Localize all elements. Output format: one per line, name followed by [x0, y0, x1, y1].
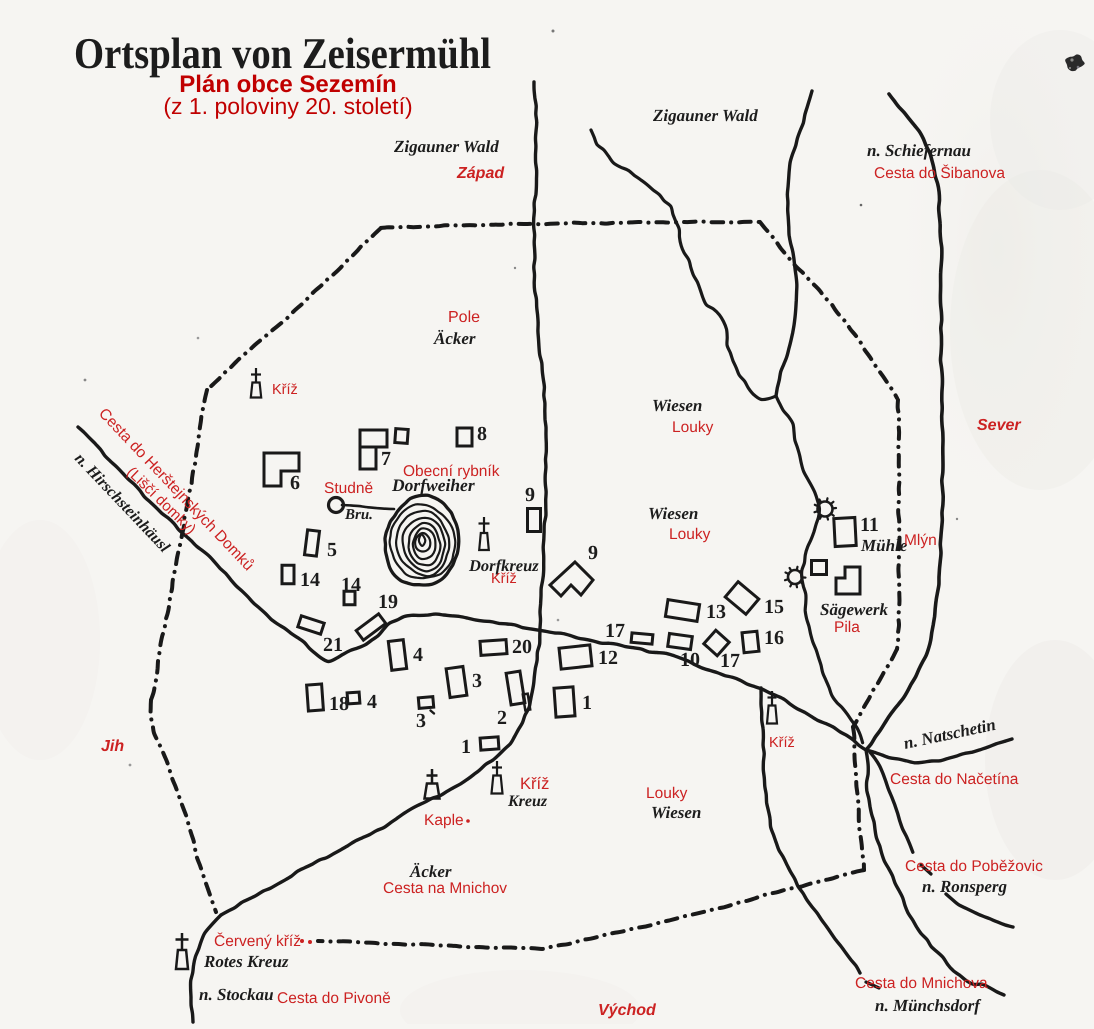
svg-text:Východ: Východ — [598, 1002, 657, 1019]
svg-text:Obecní rybník: Obecní rybník — [403, 463, 500, 480]
svg-text:Kříž: Kříž — [769, 735, 795, 751]
svg-text:Studně: Studně — [324, 480, 373, 497]
svg-text:9: 9 — [525, 484, 535, 506]
svg-text:Cesta do Pivoně: Cesta do Pivoně — [277, 990, 391, 1007]
svg-text:5: 5 — [327, 539, 337, 561]
svg-text:Äcker: Äcker — [433, 329, 476, 348]
svg-text:Sever: Sever — [977, 417, 1021, 434]
svg-text:2: 2 — [497, 707, 507, 729]
svg-text:13: 13 — [706, 601, 726, 623]
svg-text:20: 20 — [512, 636, 532, 658]
svg-text:16: 16 — [764, 627, 784, 649]
svg-text:4: 4 — [367, 691, 377, 713]
svg-text:Zigauner Wald: Zigauner Wald — [652, 106, 758, 125]
svg-text:Zigauner Wald: Zigauner Wald — [393, 137, 499, 156]
svg-text:7: 7 — [381, 448, 391, 470]
svg-text:14: 14 — [341, 574, 361, 596]
svg-text:Cesta do Poběžovic: Cesta do Poběžovic — [905, 858, 1043, 875]
svg-text:Louky: Louky — [672, 419, 714, 436]
svg-text:Bru.: Bru. — [344, 507, 373, 523]
svg-text:4: 4 — [413, 644, 423, 666]
svg-text:Äcker: Äcker — [409, 862, 452, 881]
svg-text:n. Ronsperg: n. Ronsperg — [922, 877, 1008, 896]
svg-text:Sägewerk: Sägewerk — [820, 600, 889, 619]
svg-text:Pila: Pila — [834, 619, 860, 636]
svg-text:Kreuz: Kreuz — [507, 793, 548, 810]
svg-text:8: 8 — [477, 423, 487, 445]
svg-text:Pole: Pole — [448, 309, 480, 326]
svg-text:Mlýn: Mlýn — [904, 532, 937, 549]
svg-text:(z 1. poloviny 20. století): (z 1. poloviny 20. století) — [163, 93, 412, 119]
svg-text:n. Stockau: n. Stockau — [199, 985, 274, 1004]
svg-text:14: 14 — [300, 569, 320, 591]
svg-text:Kaple: Kaple — [424, 812, 464, 829]
svg-text:17: 17 — [720, 650, 740, 672]
svg-text:n. Münchsdorf: n. Münchsdorf — [875, 996, 982, 1015]
svg-text:Jih: Jih — [101, 738, 124, 755]
svg-text:3: 3 — [472, 670, 482, 692]
svg-text:1: 1 — [461, 736, 471, 758]
svg-text:15: 15 — [764, 596, 784, 618]
svg-text:19: 19 — [378, 591, 398, 613]
svg-text:18: 18 — [329, 693, 349, 715]
svg-text:Louky: Louky — [646, 785, 688, 802]
svg-text:6: 6 — [290, 472, 300, 494]
svg-text:Kříž: Kříž — [520, 775, 549, 793]
svg-text:n. Schiefernau: n. Schiefernau — [867, 141, 971, 160]
svg-text:11: 11 — [860, 514, 879, 536]
svg-text:12: 12 — [598, 647, 618, 669]
svg-text:Kříž: Kříž — [272, 382, 298, 398]
svg-text:Západ: Západ — [456, 165, 505, 182]
svg-text:1: 1 — [582, 692, 592, 714]
svg-text:Rotes Kreuz: Rotes Kreuz — [203, 952, 289, 971]
svg-text:Louky: Louky — [669, 526, 711, 543]
svg-text:9: 9 — [588, 542, 598, 564]
svg-text:Wiesen: Wiesen — [651, 803, 701, 822]
svg-text:10: 10 — [680, 649, 700, 671]
svg-text:Cesta na Mnichov: Cesta na Mnichov — [383, 880, 507, 897]
svg-text:21: 21 — [323, 634, 343, 656]
svg-text:Červený kříž: Červený kříž — [214, 932, 301, 950]
svg-text:Mühle: Mühle — [860, 536, 908, 555]
svg-text:Wiesen: Wiesen — [652, 396, 702, 415]
svg-text:Kříž: Kříž — [491, 571, 517, 587]
svg-text:3: 3 — [416, 710, 426, 732]
svg-text:Cesta do Mnichova: Cesta do Mnichova — [855, 975, 988, 992]
svg-text:Wiesen: Wiesen — [648, 504, 698, 523]
svg-text:Cesta do Načetína: Cesta do Načetína — [890, 771, 1019, 788]
svg-text:17: 17 — [605, 620, 625, 642]
svg-text:Cesta do Šibanova: Cesta do Šibanova — [874, 164, 1005, 182]
